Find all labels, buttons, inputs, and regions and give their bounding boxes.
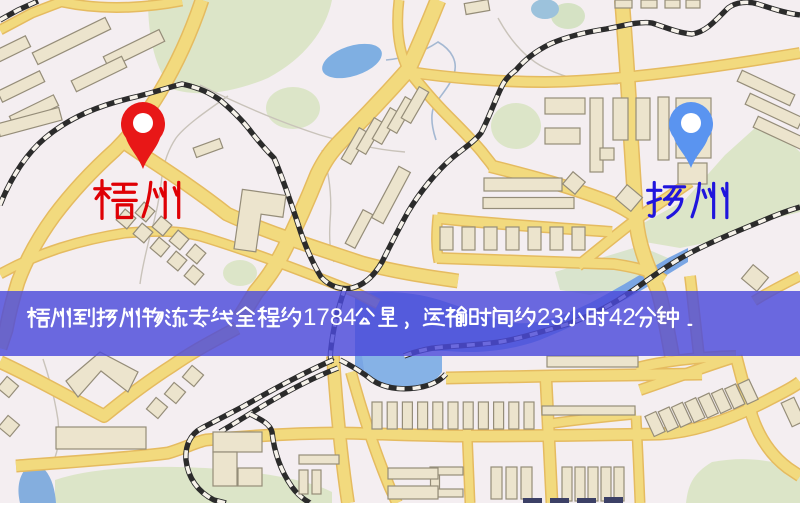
svg-text:23: 23: [537, 304, 564, 331]
svg-text:42: 42: [609, 304, 636, 331]
svg-text:1784: 1784: [303, 304, 356, 331]
